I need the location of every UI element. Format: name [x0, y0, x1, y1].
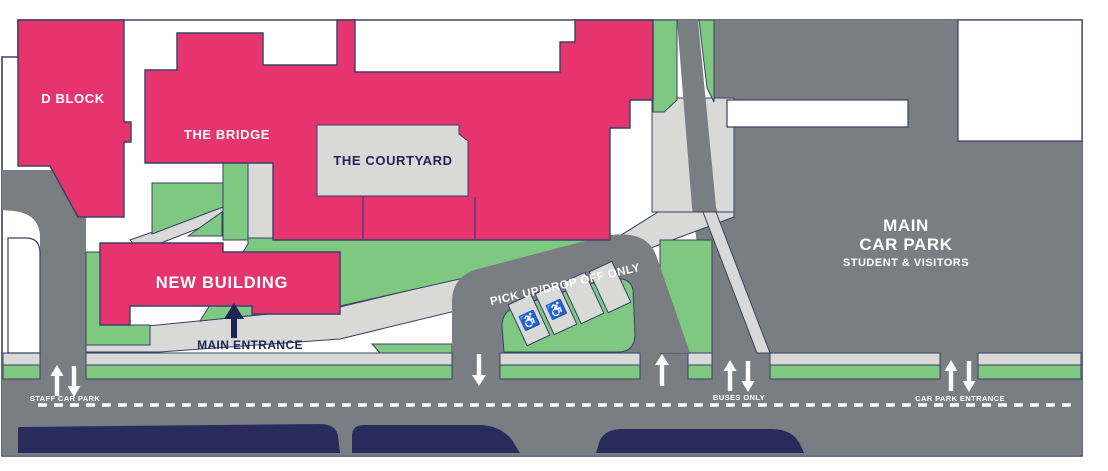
car-park-building — [727, 100, 908, 127]
campus-map: ♿ ♿ — [0, 0, 1108, 471]
staff-car-park-label: STAFF CAR PARK — [30, 394, 101, 403]
sidewalk-strips — [3, 353, 1081, 365]
the-bridge-label: THE BRIDGE — [184, 127, 270, 142]
south-building — [18, 424, 340, 453]
grass-verge-strips — [3, 365, 1081, 379]
west-yard — [8, 238, 40, 353]
buses-only-label: BUSES ONLY — [713, 393, 765, 402]
main-entrance-label: MAIN ENTRANCE — [197, 338, 303, 352]
main-car-park-label-line3: STUDENT & VISITORS — [843, 257, 969, 269]
main-car-park-label-line2: CAR PARK — [859, 235, 952, 254]
grass-north-strip-left — [653, 20, 677, 112]
campus-map-svg: ♿ ♿ — [0, 0, 1108, 471]
grass-near-loop — [372, 344, 452, 353]
roadside-strips — [3, 353, 1081, 379]
the-courtyard-label: THE COURTYARD — [333, 153, 452, 168]
south-building — [352, 425, 520, 453]
new-building-label: NEW BUILDING — [156, 274, 288, 292]
car-park-entrance-label: CAR PARK ENTRANCE — [915, 394, 1005, 403]
bridge-side-path — [248, 163, 273, 240]
main-car-park-label-line1: MAIN — [883, 216, 929, 235]
south-building — [596, 429, 804, 453]
d-block-label: D BLOCK — [41, 91, 104, 106]
grass-strip-bridge — [223, 163, 248, 240]
north-east-yard — [958, 20, 1082, 141]
